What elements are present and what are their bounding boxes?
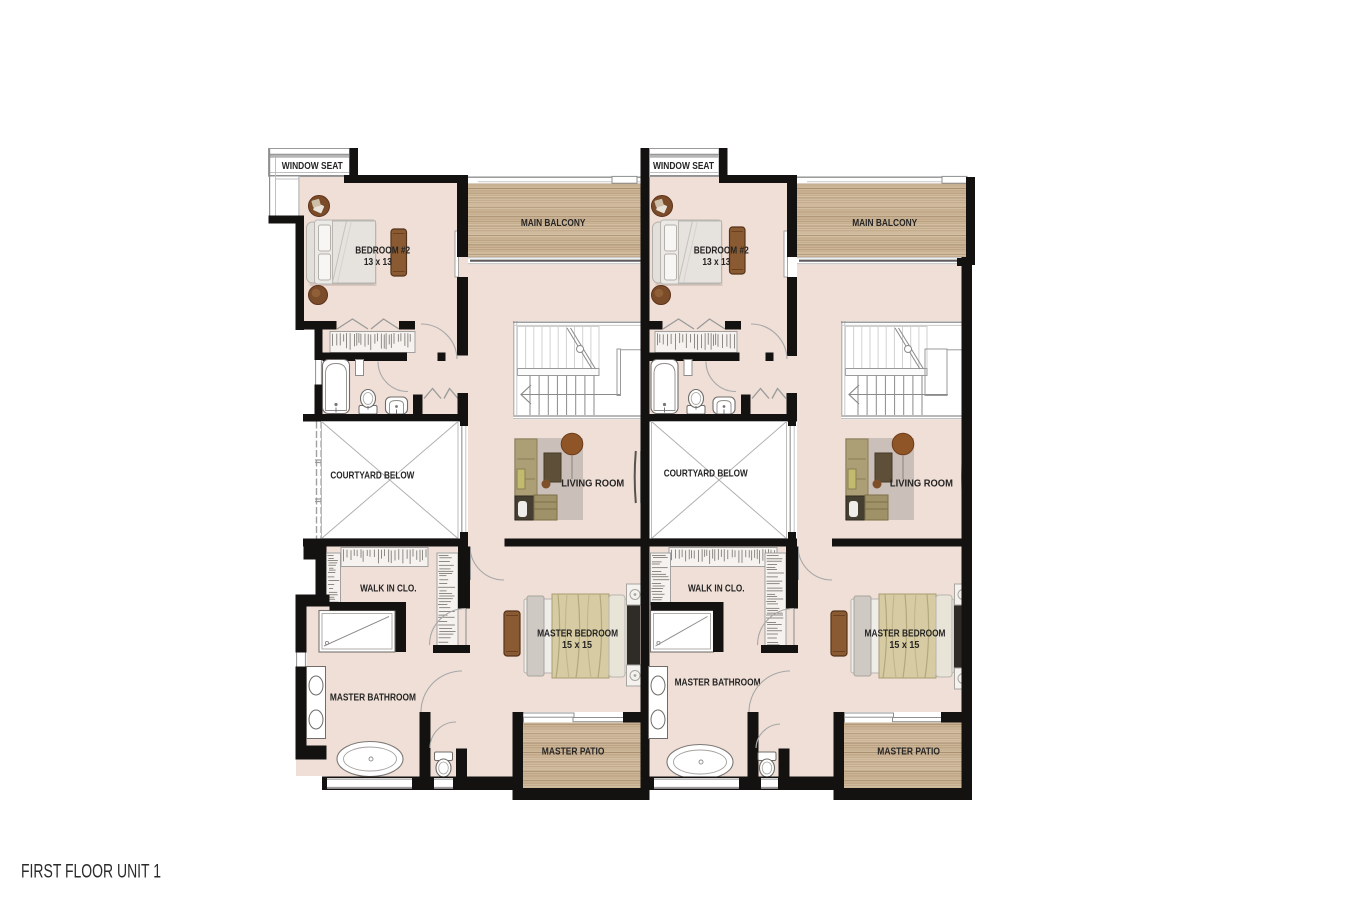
svg-text:MASTER PATIO: MASTER PATIO xyxy=(542,747,605,758)
svg-text:MASTER BEDROOM: MASTER BEDROOM xyxy=(537,629,618,640)
svg-text:MASTER PATIO: MASTER PATIO xyxy=(877,747,940,758)
svg-text:LIVING ROOM: LIVING ROOM xyxy=(561,478,624,489)
svg-text:MASTER BATHROOM: MASTER BATHROOM xyxy=(330,693,416,704)
svg-text:WALK IN CLO.: WALK IN CLO. xyxy=(688,584,745,595)
svg-text:MAIN BALCONY: MAIN BALCONY xyxy=(852,218,917,229)
svg-text:13 x 13: 13 x 13 xyxy=(364,257,392,268)
svg-text:BEDROOM #2: BEDROOM #2 xyxy=(694,246,749,257)
svg-text:WINDOW SEAT: WINDOW SEAT xyxy=(282,161,343,172)
svg-text:MASTER BATHROOM: MASTER BATHROOM xyxy=(675,678,761,689)
svg-text:WINDOW SEAT: WINDOW SEAT xyxy=(653,161,714,172)
svg-text:MAIN BALCONY: MAIN BALCONY xyxy=(521,218,586,229)
svg-text:COURTYARD BELOW: COURTYARD BELOW xyxy=(330,471,414,482)
svg-text:15 x 15: 15 x 15 xyxy=(562,640,592,651)
svg-text:15 x 15: 15 x 15 xyxy=(889,640,919,651)
svg-text:WALK IN CLO.: WALK IN CLO. xyxy=(360,584,417,595)
svg-text:BEDROOM #2: BEDROOM #2 xyxy=(355,246,410,257)
svg-text:LIVING ROOM: LIVING ROOM xyxy=(890,478,953,489)
svg-text:COURTYARD BELOW: COURTYARD BELOW xyxy=(664,469,748,480)
svg-text:FIRST FLOOR UNIT 1: FIRST FLOOR UNIT 1 xyxy=(21,861,161,882)
svg-text:MASTER BEDROOM: MASTER BEDROOM xyxy=(865,629,946,640)
svg-text:13 x 13: 13 x 13 xyxy=(702,257,730,268)
